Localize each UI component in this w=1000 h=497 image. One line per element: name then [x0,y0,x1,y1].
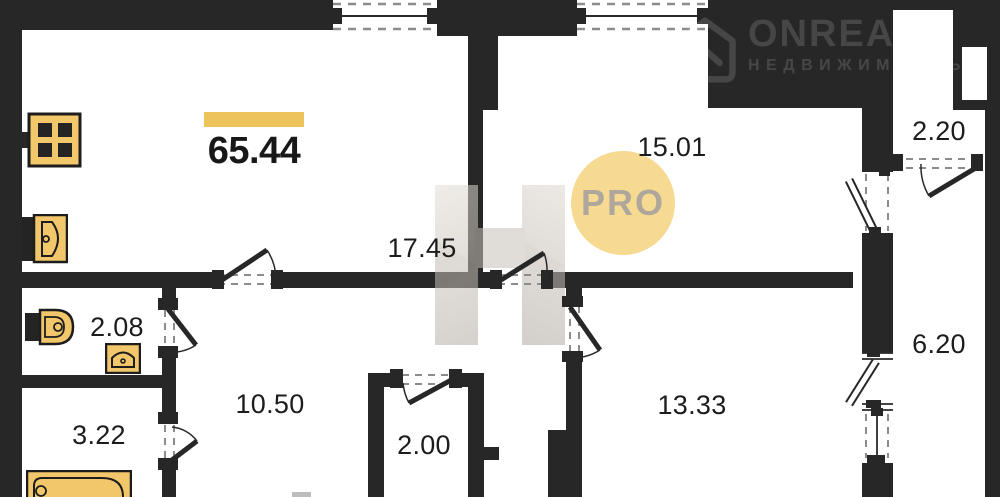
pro-badge: PRO [571,151,675,255]
door-bedroom2 [562,296,600,362]
balcony-door-bedroom [849,167,890,236]
room-area-loggia: 6.20 [894,329,984,360]
room-area-wardrobe: 2.20 [894,116,984,147]
door-bedroom [490,253,553,289]
brand-subtitle: НЕДВИЖИМОСТЬ [748,57,967,75]
floor-plan: 65.44 17.45 15.01 2.20 6.20 2.08 3.22 10… [0,0,1000,497]
house-logo-icon [672,14,738,86]
room-area-hallway: 10.50 [225,389,315,420]
door-bathroom [158,412,197,470]
brand-name: ONREALT [748,14,967,54]
door-living [212,250,283,289]
room-area-living-kitchen: 17.45 [377,233,467,264]
total-area-block: 65.44 [198,112,310,173]
room-area-wc: 2.08 [72,312,162,343]
door-wc [158,298,196,358]
total-area-value: 65.44 [198,130,310,173]
pro-badge-label: PRO [581,182,665,224]
balcony-window-block [849,349,893,464]
room-area-bathroom: 3.22 [54,420,144,451]
door-wardrobe [891,154,983,196]
room-area-bedroom: 15.01 [627,132,717,163]
room-area-bedroom2: 13.33 [647,390,737,421]
window-living [331,4,438,29]
brand-watermark: ONREALT НЕДВИЖИМОСТЬ [672,14,967,86]
door-closet [390,369,462,403]
room-area-closet: 2.00 [379,430,469,461]
accent-bar [204,112,304,127]
